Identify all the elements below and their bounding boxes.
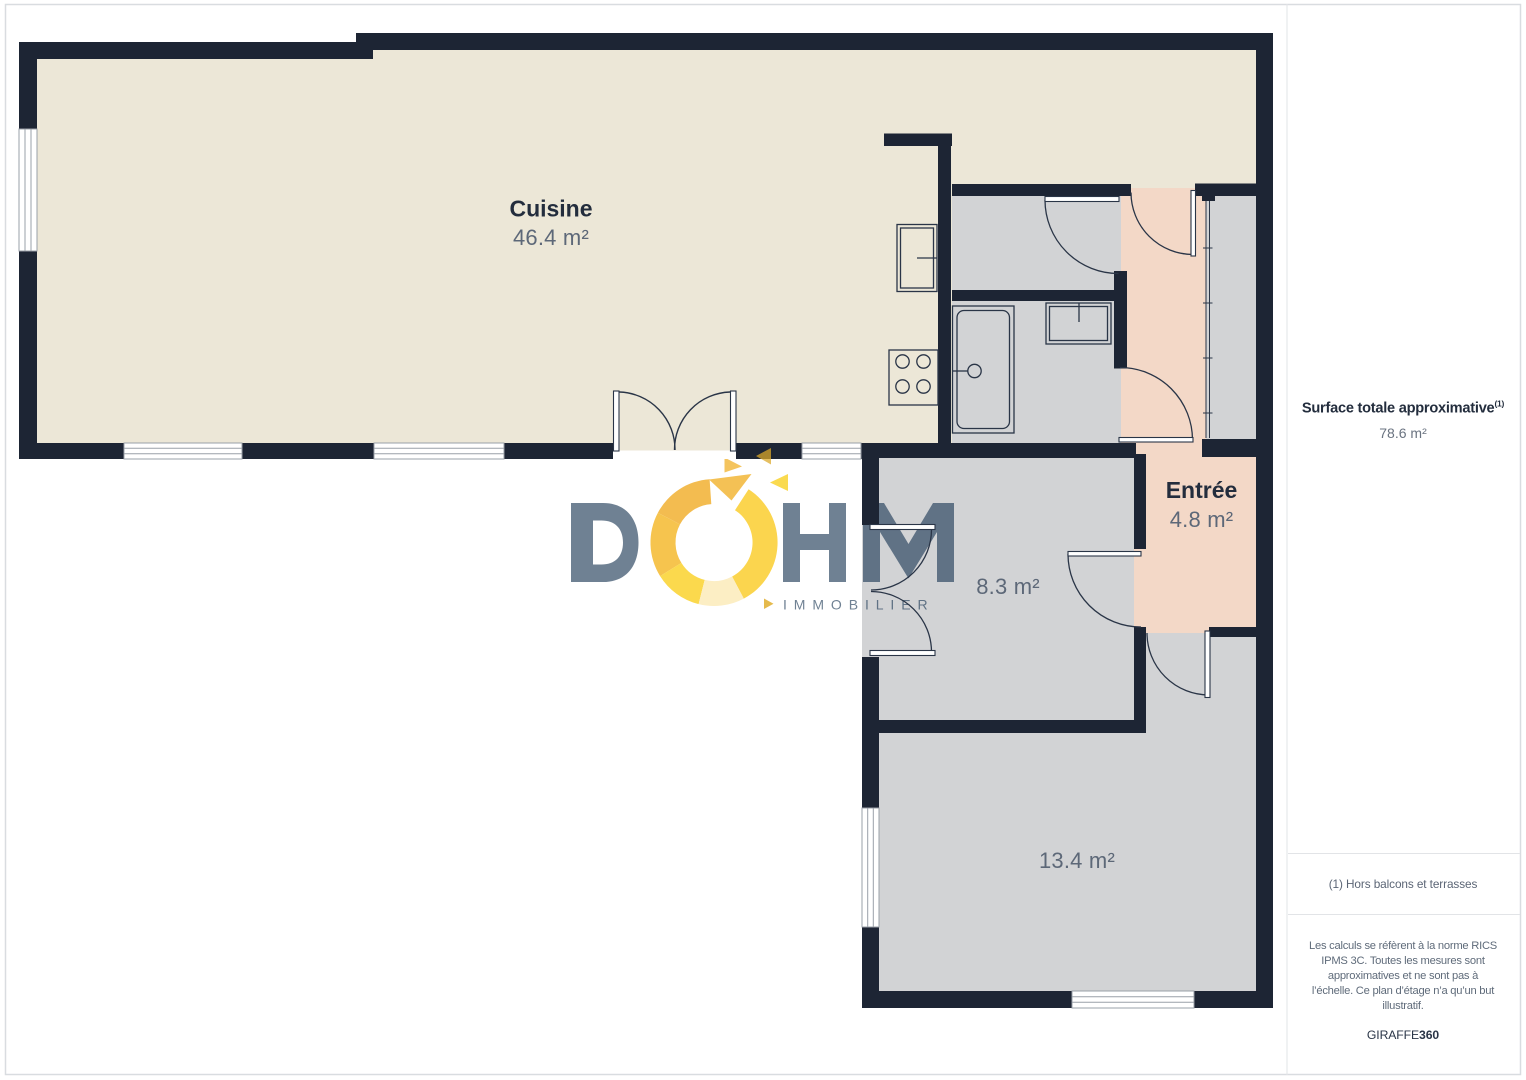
svg-text:approximatives et ne sont pas: approximatives et ne sont pas à (1328, 970, 1479, 982)
svg-text:8.3 m²: 8.3 m² (976, 574, 1040, 599)
svg-text:Entrée: Entrée (1166, 477, 1238, 503)
svg-text:Cuisine: Cuisine (509, 196, 592, 222)
svg-text:illustratif.: illustratif. (1382, 1000, 1423, 1012)
svg-text:78.6 m²: 78.6 m² (1379, 425, 1427, 441)
svg-text:l’échelle. Ce plan d’étage n’a: l’échelle. Ce plan d’étage n’a qu’un but (1312, 985, 1495, 997)
svg-text:Surface totale approximative(1: Surface totale approximative(1) (1302, 399, 1505, 417)
svg-text:GIRAFFE360: GIRAFFE360 (1367, 1028, 1439, 1042)
svg-text:(1) Hors balcons et terrasses: (1) Hors balcons et terrasses (1329, 877, 1478, 891)
svg-text:Les calculs se réfèrent à la n: Les calculs se réfèrent à la norme RICS (1309, 940, 1497, 952)
svg-text:46.4 m²: 46.4 m² (513, 225, 589, 250)
svg-text:IMMOBILIER: IMMOBILIER (783, 597, 934, 613)
svg-text:13.4 m²: 13.4 m² (1039, 848, 1115, 873)
svg-text:IPMS 3C. Toutes les mesures so: IPMS 3C. Toutes les mesures sont (1321, 955, 1486, 967)
svg-text:4.8 m²: 4.8 m² (1170, 507, 1234, 532)
